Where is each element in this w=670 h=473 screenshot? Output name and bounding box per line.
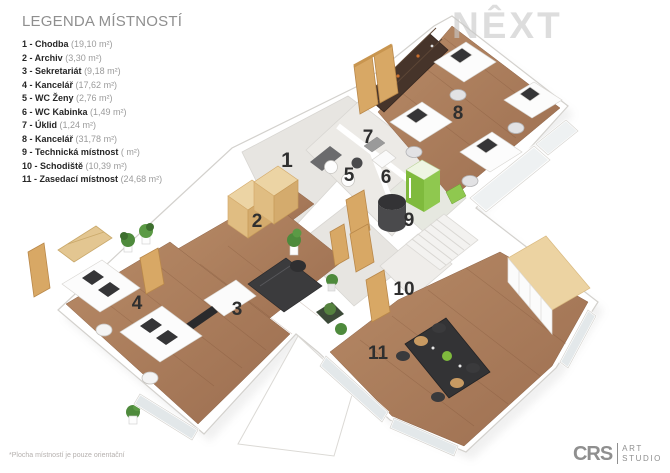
chair-dark [396,351,410,361]
chair-wood [450,378,464,388]
table-plant [442,351,452,361]
legend-item-label: 5 - WC Ženy [22,93,74,103]
legend-item-area: (24,68 m²) [121,174,163,184]
chair-dark [466,363,480,373]
room-number-label: 9 [404,210,415,231]
legend-item: 5 - WC Ženy (2,76 m²) [22,92,237,106]
chair-dark [431,392,445,402]
studio-logo-brand: CRS [573,444,612,464]
corridor-bench [58,226,112,262]
legend-item-label: 11 - Zasedací místnost [22,174,118,184]
studio-logo-divider [617,443,618,464]
sink [325,161,338,174]
legend-item-area: (17,62 m²) [76,80,118,90]
legend-item: 3 - Sekretariát (9,18 m²) [22,65,237,79]
legend-item: 10 - Schodiště (10,39 m²) [22,160,237,174]
room-number-label: 1 [281,149,293,172]
legend-item: 7 - Úklid (1,24 m²) [22,119,237,133]
legend-item-label: 4 - Kancelář [22,80,73,90]
legend-item-label: 6 - WC Kabinka [22,107,88,117]
legend-item-label: 10 - Schodiště [22,161,83,171]
legend-item: 9 - Technická místnost ( m²) [22,146,237,160]
floor-plan-page: 1 2 3 4 5 6 7 8 9 10 11 NÊXT LEGENDA MÍS… [0,0,670,473]
room-number-label: 10 [393,279,414,300]
legend-item: 1 - Chodba (19,10 m²) [22,38,237,52]
room-number-label: 5 [344,165,355,186]
room-number-label: 3 [232,299,243,320]
legend-item-area: (1,49 m²) [90,107,127,117]
studio-logo-line2: STUDIO [622,454,662,464]
legend-item-label: 2 - Archiv [22,53,63,63]
legend-item: 4 - Kancelář (17,62 m²) [22,79,237,93]
room-number-label: 2 [252,211,263,232]
room-number-label: 11 [368,343,389,364]
legend-item-area: (9,18 m²) [84,66,121,76]
footnote: *Plocha místností je pouze orientační [9,452,125,459]
studio-logo: CRS ART STUDIO [573,443,662,464]
office-chair [290,260,306,272]
room-number-label: 8 [453,103,464,124]
legend-item-area: (3,30 m²) [65,53,102,63]
chair-wood [414,336,428,346]
legend-item-label: 7 - Úklid [22,120,57,130]
studio-logo-line1: ART [622,444,662,454]
legend-item-label: 1 - Chodba [22,39,69,49]
door-left [28,243,50,297]
legend-item-label: 3 - Sekretariát [22,66,82,76]
legend-item-area: ( m²) [121,147,140,157]
room-number-label: 6 [381,167,392,188]
legend-item-area: (10,39 m²) [86,161,128,171]
legend-item-area: (1,24 m²) [60,120,97,130]
legend-title: LEGENDA MÍSTNOSTÍ [22,13,237,30]
legend-item: 8 - Kancelář (31,78 m²) [22,133,237,147]
legend-item: 2 - Archiv (3,30 m²) [22,52,237,66]
legend: LEGENDA MÍSTNOSTÍ 1 - Chodba (19,10 m²) … [22,13,237,187]
balcony-plant [335,323,347,335]
legend-item: 6 - WC Kabinka (1,49 m²) [22,106,237,120]
legend-item-area: (19,10 m²) [71,39,113,49]
legend-item-label: 8 - Kancelář [22,134,73,144]
legend-item-area: (2,76 m²) [76,93,113,103]
legend-item-label: 9 - Technická místnost [22,147,118,157]
room-number-label: 4 [132,293,143,314]
next-watermark: NÊXT [452,5,563,47]
room-number-label: 7 [363,127,374,148]
legend-item: 11 - Zasedací místnost (24,68 m²) [22,173,237,187]
chair-dark [432,323,446,333]
legend-item-area: (31,78 m²) [76,134,118,144]
